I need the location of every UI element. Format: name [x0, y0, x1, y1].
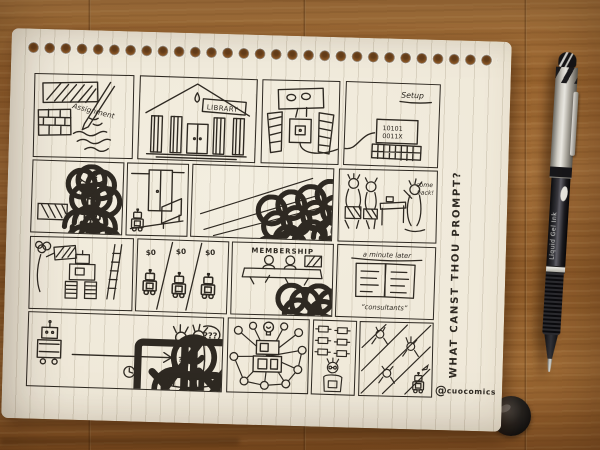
panel-assignment: Assignment [33, 73, 135, 159]
setup-sketch: Setup 10101 0011X [344, 82, 440, 167]
underline [400, 101, 431, 103]
panel-membership: MEMBERSHIP [230, 241, 334, 316]
panel-greeting: Hi! [30, 159, 124, 235]
panel-computer [261, 79, 341, 165]
panel-library: LIBRARY [137, 75, 258, 163]
robot-icon [201, 273, 215, 299]
price-1: $0 [146, 248, 156, 257]
component-icons [315, 326, 350, 357]
brick-wall [38, 109, 72, 136]
pen-barrel: Liquid Gel Ink [546, 178, 570, 267]
table [380, 197, 406, 226]
picture-hatch [43, 81, 99, 104]
price-2: $0 [176, 247, 186, 256]
panel-ideas: ? ??? [26, 311, 224, 392]
staff [263, 255, 296, 269]
pen-cap [550, 67, 578, 168]
panel-consultants: a minute later “consultants” [335, 244, 436, 320]
crowd-rows [253, 169, 333, 240]
panel-queue [190, 164, 334, 242]
panel-comeback: come back! [337, 168, 438, 243]
artist-signature: @cuocomics [406, 377, 496, 399]
spiral-binding-holes [27, 41, 497, 66]
consultants-caption: “consultants” [361, 303, 408, 313]
booth [305, 256, 322, 267]
pen-tip [546, 359, 552, 372]
big-robot [37, 320, 62, 364]
at-symbol: @ [435, 383, 447, 397]
robot-icon [172, 272, 186, 298]
confusion-text: ??? [203, 330, 218, 340]
writing-squiggles [73, 131, 111, 152]
pen-cap-top [558, 52, 577, 68]
doorstep-sketch [29, 237, 133, 310]
margin-question: WHAT CANST THOU PROMPT? [448, 164, 472, 384]
panel-free-tier: $0 $0 $0 [135, 238, 229, 314]
tinkerer-person [323, 358, 342, 392]
table-shadow [0, 438, 240, 445]
price-3: $0 [205, 248, 215, 257]
hatched-clothes [38, 203, 68, 220]
bulb-icon [264, 322, 274, 335]
setup-label: Setup [401, 91, 424, 101]
notebook-page: Assignment LIBRARY [1, 28, 512, 432]
hub-robot [253, 340, 282, 372]
library-sketch: LIBRARY [138, 76, 257, 162]
pen-cone [542, 334, 559, 359]
greeting-sketch: Hi! [31, 160, 123, 234]
assignment-sketch: Assignment [34, 74, 134, 158]
monitor [278, 87, 324, 117]
open-book [355, 263, 415, 299]
steps [146, 154, 246, 160]
panel-parts [311, 319, 357, 395]
visitor-figures [345, 174, 378, 229]
office-sketch [126, 163, 188, 235]
tracked-robot [65, 250, 97, 298]
panel-doorstep [28, 236, 134, 311]
comeback-line2: back! [417, 190, 434, 197]
speaker-left [267, 112, 283, 153]
torso-question-mark: ? [178, 356, 182, 364]
hatched-sign [54, 245, 77, 260]
signature-handle: cuocomics [447, 386, 496, 396]
pen-barrel-text: Liquid Gel Ink [548, 184, 559, 260]
member-crowd [274, 285, 333, 316]
parts-sketch [312, 320, 356, 394]
climber-3 [379, 366, 395, 383]
cable [345, 132, 375, 150]
robot-icon [143, 269, 157, 295]
flag [422, 365, 428, 370]
queue-sketch [191, 165, 333, 240]
climber-2 [403, 337, 419, 357]
free-tier-sketch: $0 $0 $0 [136, 239, 228, 313]
panel-network [226, 317, 310, 394]
consultants-sketch: a minute later “consultants” [336, 245, 435, 319]
pen-clip [570, 92, 579, 156]
fluffy-person [35, 241, 55, 292]
comeback-line1: come [416, 182, 433, 189]
network-sketch [227, 318, 309, 393]
ideas-sketch: ? ??? [27, 312, 223, 391]
door [187, 124, 208, 154]
minute-later-caption: a minute later [363, 250, 413, 260]
counter [242, 268, 322, 279]
computer-sketch [262, 80, 340, 164]
keyboard [372, 144, 422, 161]
binary-line1: 10101 [382, 125, 402, 133]
membership-label: MEMBERSHIP [251, 247, 314, 256]
comeback-sketch: come back! [338, 170, 437, 243]
clock-icon [124, 366, 135, 377]
drop-emblem [195, 93, 200, 102]
arrow [72, 350, 172, 363]
panel-office [125, 162, 189, 236]
speaker-right [318, 113, 334, 154]
panel-setup: Setup 10101 0011X [343, 81, 441, 168]
wall-lines [132, 171, 184, 174]
robot-icon [131, 209, 143, 232]
membership-sketch: MEMBERSHIP [231, 242, 333, 315]
pen-oval-label [559, 186, 568, 202]
pen-grip [542, 272, 564, 335]
ladder [107, 244, 122, 299]
hi-text: Hi! [87, 172, 98, 180]
binary-line2: 0011X [382, 133, 403, 141]
